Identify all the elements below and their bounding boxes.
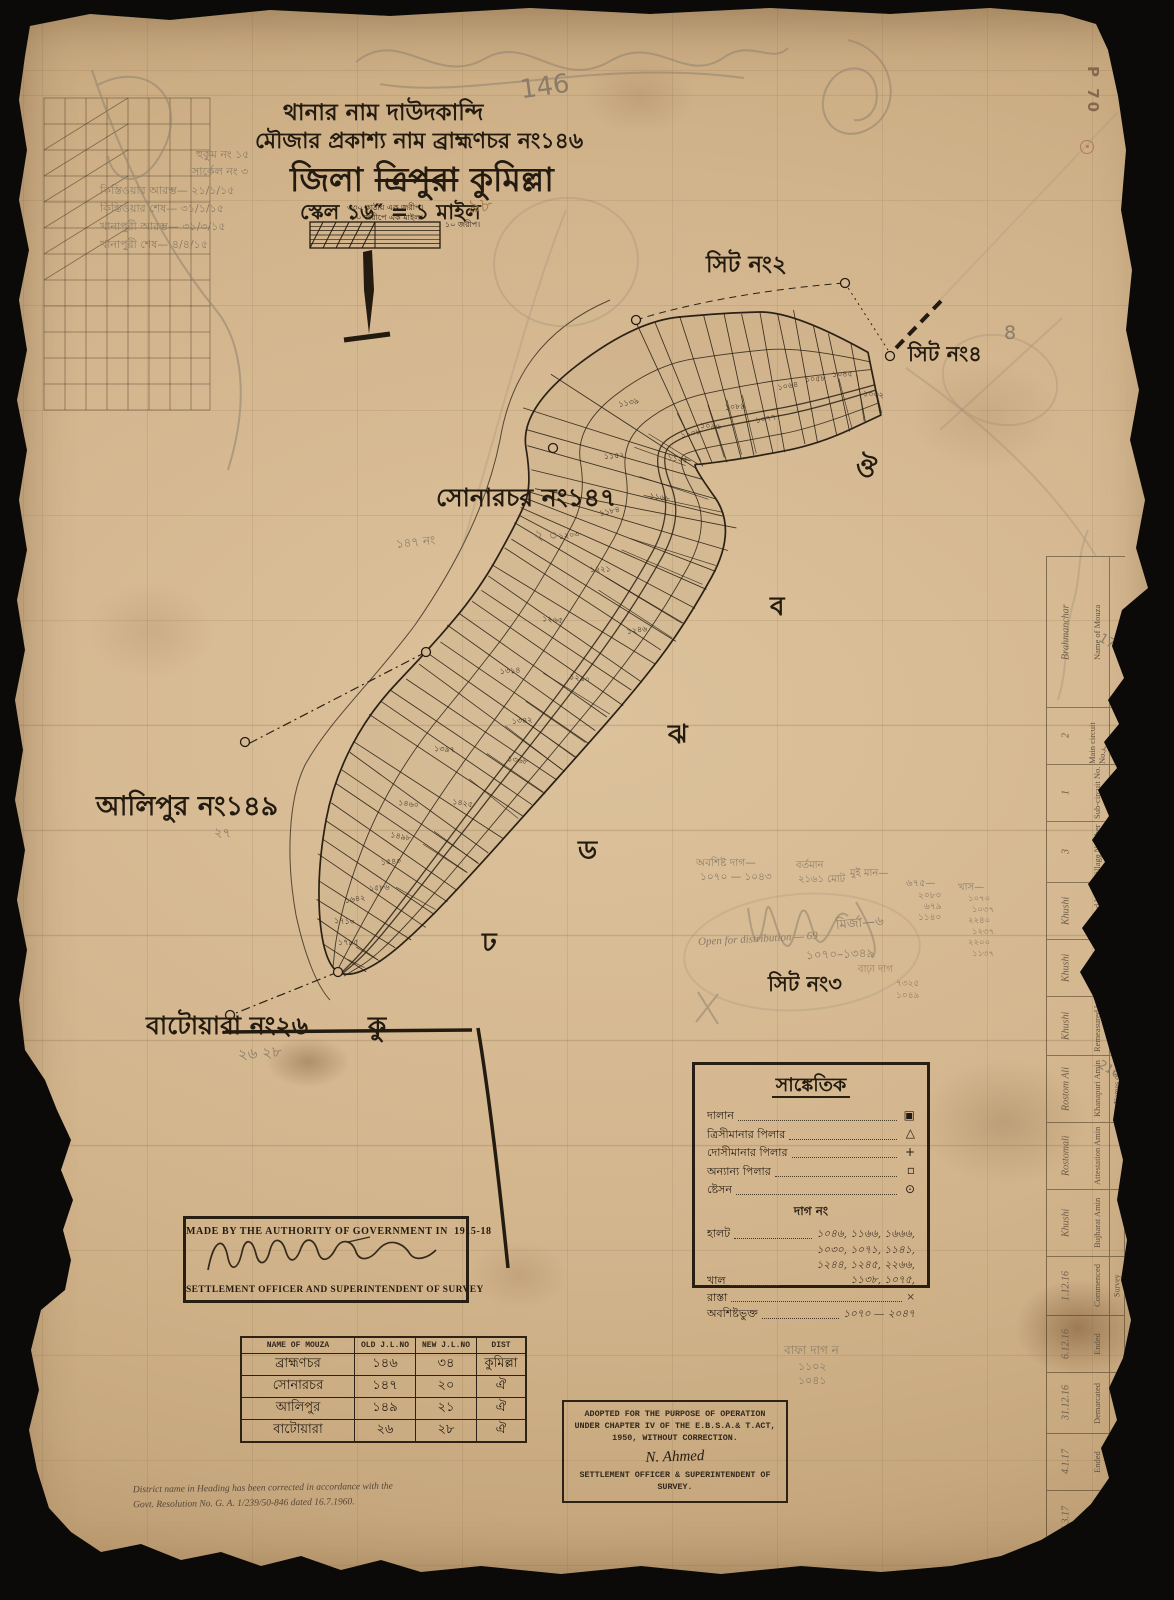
plot-number: ১৩৪২: [511, 715, 533, 726]
plot-number: ১০৯৬: [700, 421, 721, 431]
legend-entry-row: হালট১০৪৬, ১১৬৬, ১৬৬৬,: [707, 1226, 915, 1242]
mouza-table: NAME OF MOUZAOLD J.L.NONEW J.L.NODISTব্র…: [240, 1336, 527, 1443]
adopted-line-3: 1950, WITHOUT CORRECTION.: [568, 1433, 782, 1445]
legend-symbol-label: ষ্টেসন: [707, 1182, 732, 1198]
margin-form-value: 1: [1047, 765, 1085, 821]
mouza-table-row: ব্রাহ্মণচর১৪৬৩৪কুমিল্লা: [241, 1354, 526, 1376]
pencil-scrawl-top: [356, 48, 788, 70]
legend-entry-value: ১০৩০, ১০৭১, ১১৪১, ১২৪৪, ১২৪৫, ২২৬৬, ১১৩৮…: [783, 1243, 915, 1289]
bold-ink-dash: [344, 334, 390, 340]
pencil-note: মুই মান—: [850, 866, 888, 883]
authority-box: MADE BY THE AUTHORITY OF GOVERNMENT IN 1…: [183, 1216, 469, 1303]
mouza-table-element: NAME OF MOUZAOLD J.L.NONEW J.L.NODISTব্র…: [240, 1336, 527, 1443]
district-label: জিলা: [290, 160, 363, 199]
margin-form-value: 6.12.16: [1047, 1316, 1085, 1372]
legend-leader-dots: [775, 1176, 897, 1177]
plot-number: ১৫৪০: [380, 856, 401, 867]
margin-form-group: Survey: [1110, 1257, 1125, 1315]
margin-form-value: 4.1.17: [1047, 1434, 1085, 1490]
adopted-signature: N. Ahmed: [568, 1444, 783, 1472]
paper-sheet: ১০৩২১০৪৫১০৫৮১০৬৪১০৭৭১০৮৯১০৯৬১১০৮১১২৫১১৩৯…: [0, 0, 1174, 1600]
legend-entry-row: খাল১০৩০, ১০৭১, ১১৪১, ১২৪৪, ১২৪৫, ২২৬৬, ১…: [707, 1243, 915, 1289]
margin-form-row: 3Village Number: [1047, 822, 1125, 883]
margin-form-label: Sub-circuit No.: [1085, 765, 1110, 821]
margin-form-row: 1.12.16CommencedSurvey: [1047, 1257, 1125, 1316]
plot-number: ১০৩২: [863, 389, 885, 400]
page-number-stamp: P 70: [1084, 66, 1102, 136]
stamp-circle-mark: [1080, 140, 1094, 154]
legend-title: সাঙ্কেতিক: [707, 1071, 915, 1103]
mouza-table-cell: ২৮: [416, 1420, 477, 1443]
legend-leader-dots: [734, 1238, 812, 1239]
margin-form-label: Bujharat Amin: [1085, 1190, 1110, 1256]
mouza-table-cell: বাটোয়ারা: [241, 1420, 355, 1443]
margin-form-row: 4.1.17Ended: [1047, 1434, 1125, 1491]
mouza-table-cell: ২১: [416, 1398, 477, 1420]
adopted-line-2: UNDER CHAPTER IV OF THE E.B.S.A.& T.ACT,: [568, 1421, 782, 1433]
district-struck-name: ত্রিপুরা: [375, 160, 459, 199]
scale-note-2: ৮০ জরীপে এক মাইল।: [351, 212, 423, 225]
pencil-note: ১৪৭ নং: [395, 532, 436, 556]
legend-symbol-rows: দালান▣ত্রিসীমানার পিলার△দোসীমানার পিলার+…: [707, 1107, 915, 1198]
pencil-note: ২৭: [214, 824, 231, 845]
plot-number: ১৩৯৭: [434, 744, 455, 754]
legend-box: সাঙ্কেতিক দালান▣ত্রিসীমানার পিলার△দোসীমা…: [692, 1062, 930, 1288]
margin-form-label: Ended: [1085, 1434, 1110, 1490]
margin-form-group: Bujharat: [1110, 1491, 1125, 1551]
mouza-table-row: আলিপুর১৪৯২১ঐ: [241, 1398, 526, 1420]
map-sheet-canvas: ১০৩২১০৪৫১০৫৮১০৬৪১০৭৭১০৮৯১০৯৬১১০৮১১২৫১১৩৯…: [0, 0, 1174, 1600]
legend-symbol-glyph: ▫: [901, 1162, 915, 1179]
legend-symbol-label: অন্যান্য পিলার: [707, 1164, 771, 1180]
pencil-note: ২১৬১ মোট: [798, 872, 845, 889]
pencil-note: ১১৪০: [918, 910, 941, 925]
legend-entry-value: ×: [906, 1290, 915, 1305]
survey-station-circle: [549, 444, 558, 453]
mouza-table-cell: ৩৪: [416, 1354, 477, 1376]
pencil-flourish: [823, 40, 891, 134]
legend-leader-dots: [762, 1318, 839, 1319]
legend-entry-value: ১০৪৬, ১১৬৬, ১৬৬৬,: [816, 1227, 915, 1242]
pencil-note: কিস্তিওয়ার শেষ— ৩১/১/১৫: [100, 200, 224, 219]
mouza-table-cell: ১৪৬: [355, 1354, 416, 1376]
margin-form-row: KhushiBujharat Amin: [1047, 1190, 1125, 1257]
legend-leader-dots: [738, 1120, 897, 1121]
pencil-x-mark: [696, 992, 718, 1024]
adopted-box: ADOPTED FOR THE PURPOSE OF OPERATION UND…: [562, 1400, 788, 1503]
legend-entry-row: রাস্তা×: [707, 1290, 915, 1306]
survey-station-circle: [334, 968, 343, 977]
margin-form-group: [1110, 1373, 1125, 1433]
margin-form-label: Demarcated: [1085, 1373, 1110, 1433]
legend-symbol-row: ত্রিসীমানার পিলার△: [707, 1125, 915, 1142]
plot-number: ১০৮৯: [725, 402, 746, 412]
pencil-note: মির্জা—৬: [835, 912, 884, 937]
pencil-note: ৯৮: [467, 191, 494, 225]
pencil-note: 200: [1090, 945, 1117, 969]
mouza-table-header: NAME OF MOUZA: [241, 1337, 355, 1354]
plot-number: ১৭৯৫: [338, 938, 359, 947]
legend-leader-dots: [730, 1285, 779, 1286]
legend-leader-dots: [731, 1301, 902, 1302]
section-letter: ঔ: [856, 448, 877, 492]
margin-form-row: RostomaliAttestation Amin: [1047, 1123, 1125, 1190]
legend-leader-dots: [789, 1139, 897, 1140]
pencil-note: 8: [1004, 322, 1016, 344]
pencil-note: ২৬ ২৮: [237, 1041, 282, 1069]
margin-form-group: [1110, 1434, 1125, 1490]
mouza-table-header: DIST: [477, 1337, 527, 1354]
pencil-note: খানাপুরী শেষ— ৪/৪/১৫: [100, 236, 208, 255]
legend-dag-heading: দাগ নং: [707, 1203, 915, 1223]
mouza-table-cell: আলিপুর: [241, 1398, 355, 1420]
margin-form-label: Ended: [1085, 1552, 1110, 1600]
legend-symbol-glyph: △: [901, 1125, 915, 1142]
mouza-table-cell: কুমিল্লা: [477, 1354, 527, 1376]
plot-number: ১১৫২: [604, 451, 625, 461]
margin-form-value: Khushi: [1047, 940, 1085, 996]
margin-form-row: 26.3.17CommencedBujharat: [1047, 1491, 1125, 1552]
plot-number: ১০৫৮: [805, 374, 827, 384]
margin-form-value: 1.12.16: [1047, 1257, 1085, 1315]
mouza-table-cell: সোনারচর: [241, 1376, 355, 1398]
legend-entry-label: রাস্তা: [707, 1290, 727, 1306]
margin-form-label: Commenced: [1085, 1257, 1110, 1315]
adopted-line-1: ADOPTED FOR THE PURPOSE OF OPERATION: [568, 1409, 782, 1421]
legend-symbol-row: দালান▣: [707, 1107, 915, 1124]
plot-number: ১২২১: [590, 564, 611, 574]
section-letter: কু: [368, 1006, 386, 1050]
margin-form-label: Attestation Amin: [1085, 1123, 1110, 1189]
pencil-sweep: [906, 368, 1096, 556]
mouza-table-header: OLD J.L.NO: [355, 1337, 416, 1354]
margin-form-value: Rostom Ali: [1047, 1056, 1085, 1122]
legend-symbol-label: দোসীমানার পিলার: [707, 1145, 788, 1161]
legend-entry-rows: হালট১০৪৬, ১১৬৬, ১৬৬৬,খাল১০৩০, ১০৭১, ১১৪১…: [707, 1226, 915, 1322]
margin-form-row: KhushiPlotted by: [1047, 883, 1125, 940]
margin-form-value: Khushi: [1047, 1190, 1085, 1256]
pencil-note: কিস্তিওয়ার আরম্ভ— ২১/১/১৫: [100, 182, 234, 201]
pencil-note: ১০৪৯: [896, 988, 919, 1003]
legend-entry-value: ১০৭০ — ২০৪৭: [843, 1307, 915, 1322]
sheet-3-label: সিট নং৩: [768, 968, 842, 1003]
margin-form-label: Plotted by: [1085, 883, 1110, 939]
authority-officer-line: SETTLEMENT OFFICER AND SUPERINTENDENT OF…: [186, 1285, 466, 1295]
mouza-table-header: NEW J.L.NO: [416, 1337, 477, 1354]
margin-form-value: 5.4.17: [1047, 1552, 1085, 1600]
margin-form-group: [1110, 1316, 1125, 1372]
sheet-4-label: সিট নং৪: [908, 338, 982, 373]
legend-entry-label: খাল: [707, 1273, 726, 1289]
survey-station-circle: [841, 279, 850, 288]
mouza-table-cell: ২০: [416, 1376, 477, 1398]
section-letter: ব: [770, 586, 784, 630]
margin-form-label: Remeasured by: [1085, 997, 1110, 1055]
pencil-note: ২ ০: [534, 524, 558, 549]
section-letter: ড: [578, 830, 597, 874]
margin-form-value: 31.12.16: [1047, 1373, 1085, 1433]
margin-form-group: [1110, 1190, 1125, 1256]
pencil-note: ১১৩৭: [972, 947, 994, 961]
mouza-table-header-row: NAME OF MOUZAOLD J.L.NONEW J.L.NODIST: [241, 1337, 526, 1354]
survey-station-circle: [886, 352, 895, 361]
legend-entry-label: হালট: [707, 1226, 730, 1242]
margin-form-label: Ended: [1085, 1316, 1110, 1372]
margin-form-row: 31.12.16Demarcated: [1047, 1373, 1125, 1434]
pencil-note: ১০৪১: [798, 1372, 827, 1391]
mouza-table-cell: ঐ: [477, 1420, 527, 1443]
legend-leader-dots: [736, 1194, 897, 1195]
section-letter: ঝ: [668, 714, 688, 758]
legend-symbol-glyph: +: [901, 1144, 915, 1161]
plot-number: ১০৪৫: [832, 369, 853, 379]
mouza-table-row: বাটোয়ারা২৬২৮ঐ: [241, 1420, 526, 1443]
mouza-table-cell: ঐ: [477, 1376, 527, 1398]
authority-line: MADE BY THE AUTHORITY OF GOVERNMENT IN 1…: [186, 1226, 466, 1237]
margin-form-value: Rostomali: [1047, 1123, 1085, 1189]
legend-symbol-label: দালান: [707, 1108, 734, 1124]
mouza-table-cell: ১৪৭: [355, 1376, 416, 1398]
margin-form-row: BrahmancharName of Mouza: [1047, 557, 1125, 708]
legend-symbol-row: অন্যান্য পিলার▫: [707, 1162, 915, 1179]
pencil-note: ১০৭০ — ১০৪৩: [700, 870, 772, 887]
margin-form-value: 2: [1047, 708, 1085, 764]
correction-footnote: District name in Heading has been correc…: [133, 1479, 463, 1513]
margin-form-value: 26.3.17: [1047, 1491, 1085, 1551]
survey-station-circle: [632, 316, 641, 325]
margin-form-group: [1110, 1123, 1125, 1189]
adopted-line-5: SURVEY.: [568, 1482, 782, 1494]
legend-entry-row: অবশিষ্টভুক্ত১০৭০ — ২০৪৭: [707, 1306, 915, 1322]
margin-form-group: [1110, 1552, 1125, 1600]
margin-form-value: Khushi: [1047, 883, 1085, 939]
margin-form-label: Commenced: [1085, 1491, 1110, 1551]
legend-symbol-row: দোসীমানার পিলার+: [707, 1144, 915, 1161]
legend-symbol-label: ত্রিসীমানার পিলার: [707, 1127, 785, 1143]
pencil-note: বাঢ়া দাগ: [858, 962, 893, 979]
margin-form-row: 6.12.16Ended: [1047, 1316, 1125, 1373]
mouza-table-cell: ব্রাহ্মণচর: [241, 1354, 355, 1376]
margin-form-row: KhushiExamined by: [1047, 940, 1125, 997]
plot-number: ১৭১০: [334, 916, 355, 926]
mouza-table-row: সোনারচর১৪৭২০ঐ: [241, 1376, 526, 1398]
station-dotted-line: [845, 283, 888, 350]
legend-symbol-glyph: ⊙: [901, 1181, 915, 1198]
survey-station-circle: [241, 738, 250, 747]
bold-ink-mark: [363, 250, 374, 334]
pencil-note: সার্কেল নং ৩: [192, 163, 248, 182]
margin-form-row: KhushiRemeasured by: [1047, 997, 1125, 1056]
pencil-note: খানাপুরী আরম্ভ— ৩১/৩/১৫: [100, 218, 226, 237]
margin-form-label: Examined by: [1085, 940, 1110, 996]
neighbor-sonarchar-label: সোনারচর নং১৪৭: [436, 478, 616, 521]
survey-station-circle: [422, 648, 431, 657]
neighbor-batoyara-label: বাটোয়ারা নং২৬: [146, 1006, 308, 1049]
plot-number: ১৫৮৬: [369, 883, 390, 893]
margin-form-value: 3: [1047, 822, 1085, 882]
legend-symbol-glyph: ▣: [901, 1107, 915, 1124]
section-letter: ঢ: [482, 922, 497, 966]
plot-number: ১৩১৪: [500, 666, 521, 676]
mouza-table-cell: ১৪৯: [355, 1398, 416, 1420]
mouza-table-cell: ঐ: [477, 1398, 527, 1420]
margin-form-value: Brahmanchar: [1047, 557, 1085, 707]
adopted-line-4: SETTLEMENT OFFICER & SUPERINTENDENT OF: [568, 1470, 782, 1482]
pencil-diagonal-2: [940, 112, 1118, 300]
authority-year: 1915-18: [454, 1226, 492, 1237]
sheet-2-label: সিট নং২: [706, 246, 787, 285]
neighbor-alipur-label: আলিপুর নং১৪৯: [96, 786, 278, 831]
margin-form-row: 1Sub-circuit No.: [1047, 765, 1125, 822]
legend-entry-label: অবশিষ্টভুক্ত: [707, 1306, 758, 1322]
margin-form-row: 5.4.17Ended: [1047, 1552, 1125, 1600]
margin-form-value: Khushi: [1047, 997, 1085, 1055]
margin-form-row: 2Main circuit No.: [1047, 708, 1125, 765]
legend-symbol-row: ষ্টেসন⊙: [707, 1181, 915, 1198]
mouza-table-cell: ২৬: [355, 1420, 416, 1443]
legend-leader-dots: [792, 1157, 898, 1158]
